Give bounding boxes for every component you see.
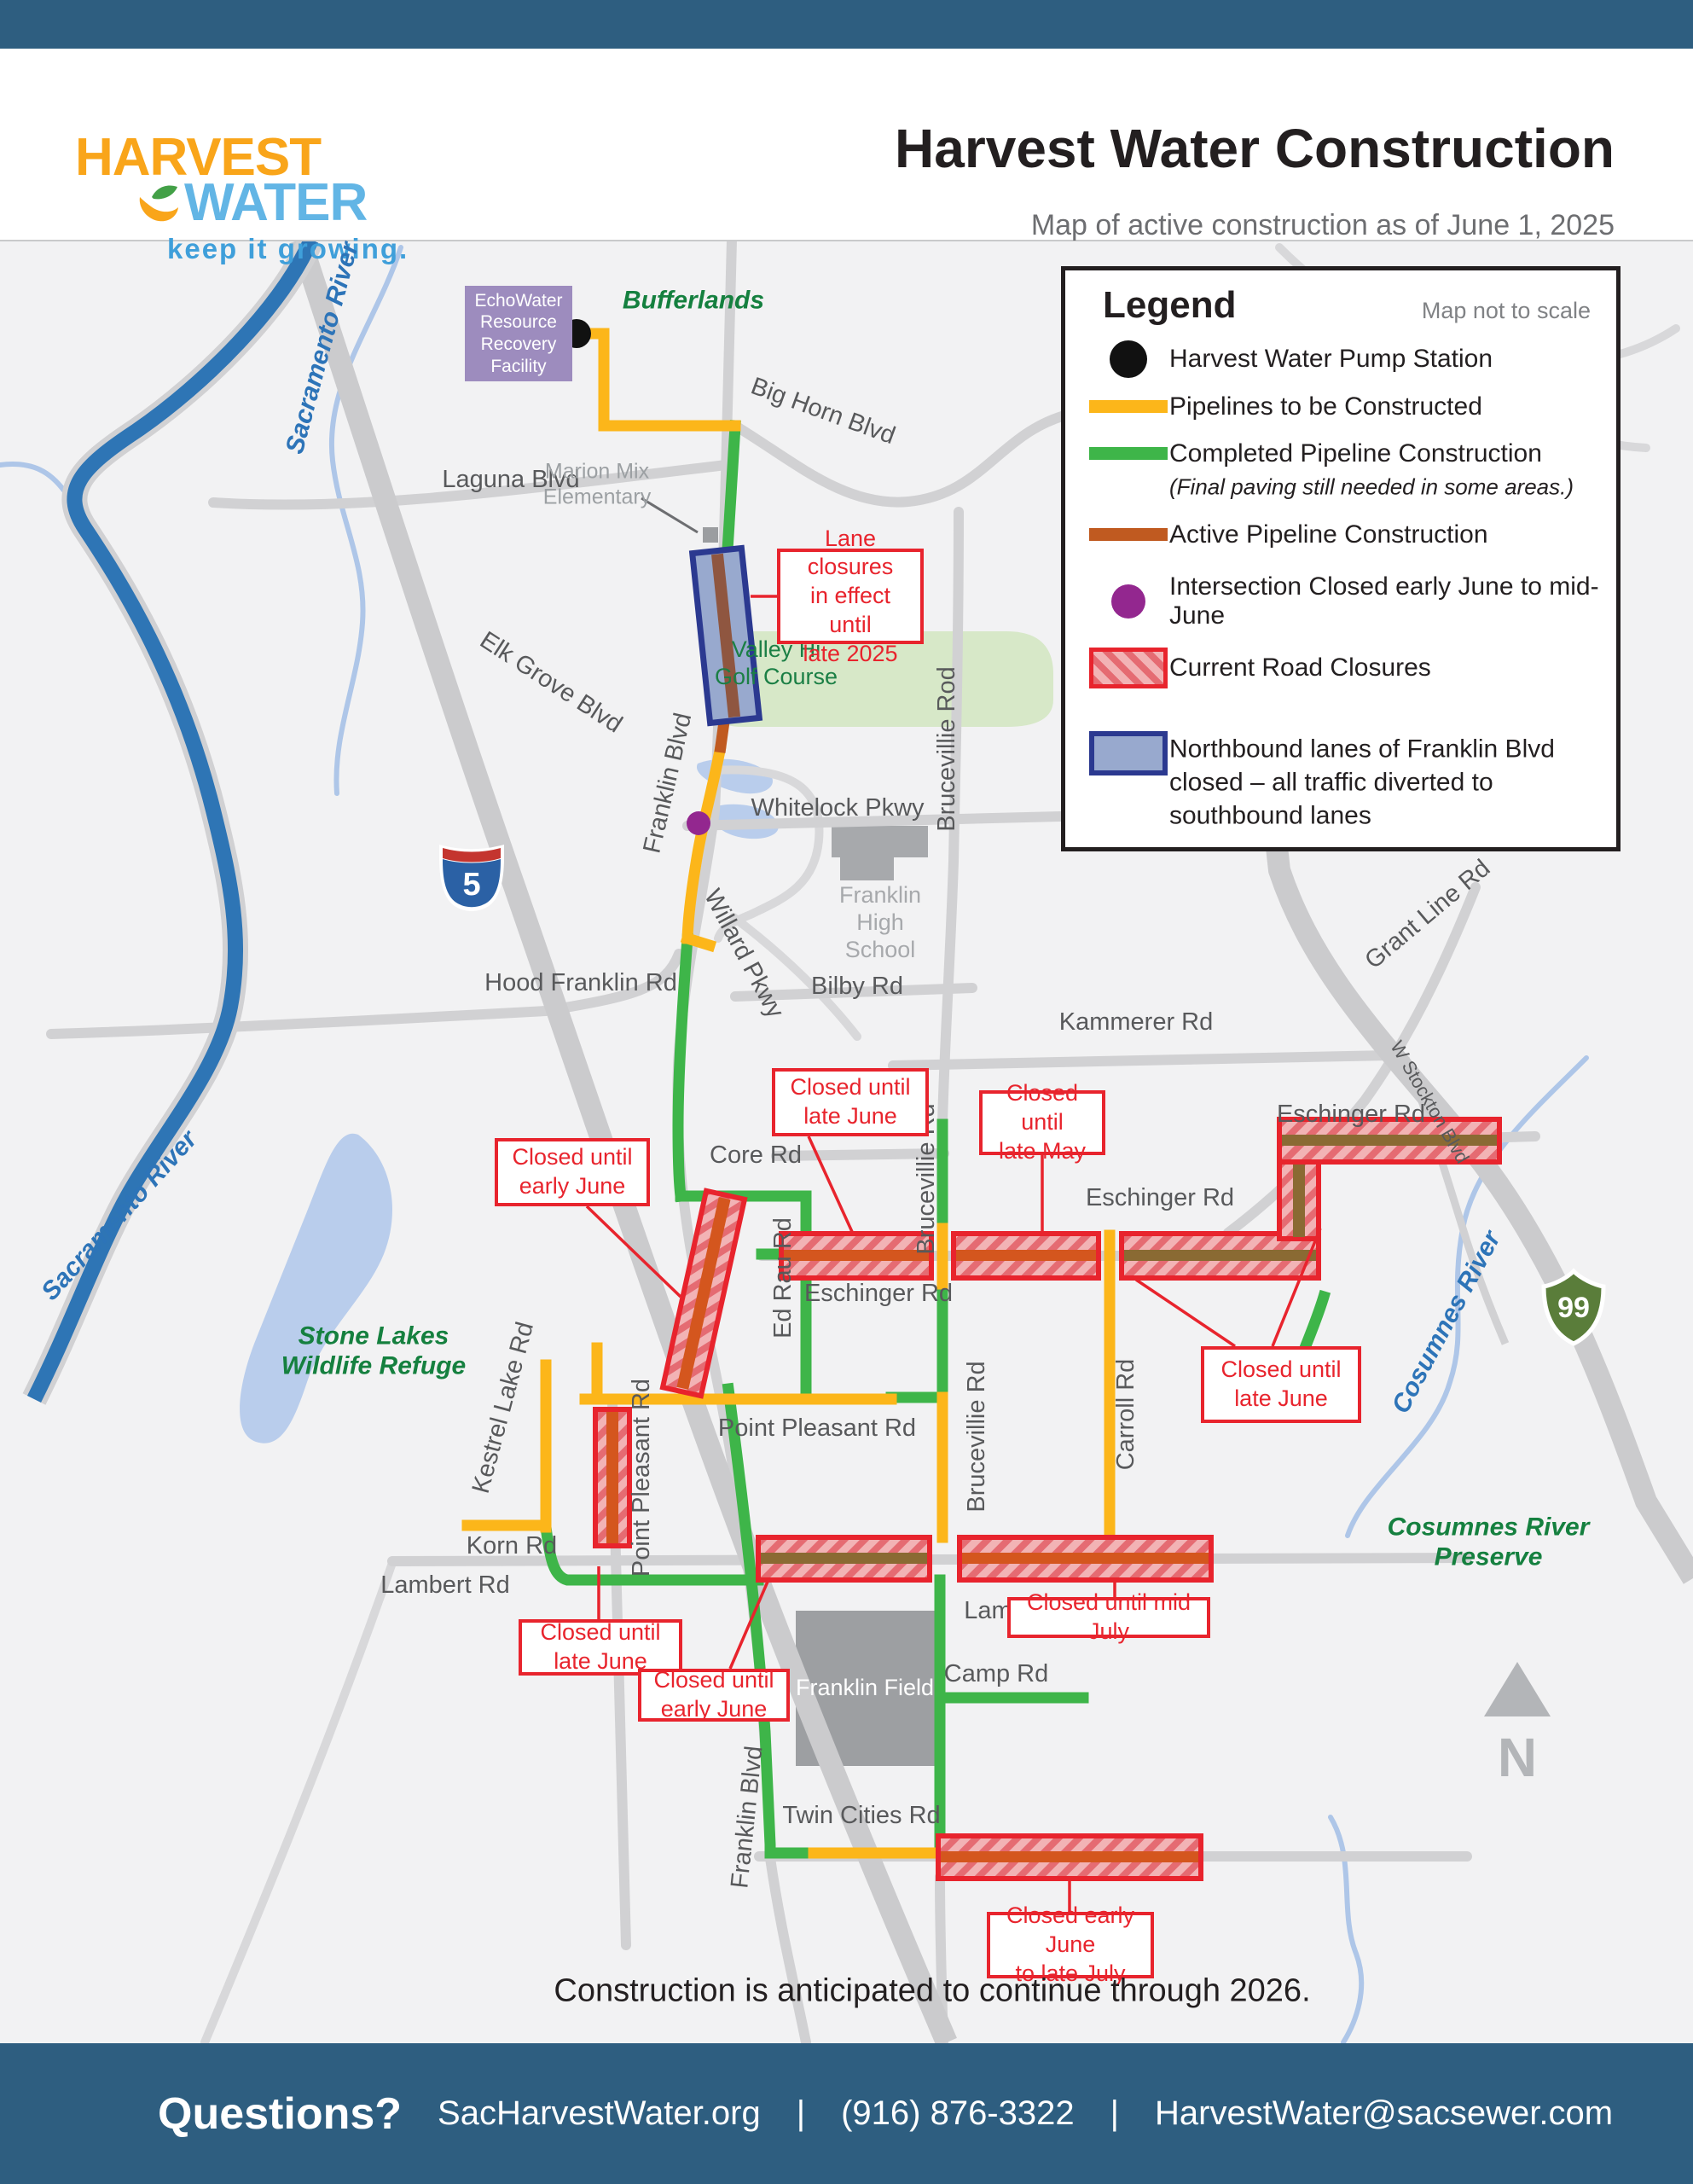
legend-box: Legend Map not to scale Harvest Water Pu… bbox=[1061, 266, 1621, 851]
label-twin-cities-rd: Twin Cities Rd bbox=[782, 1801, 940, 1830]
footer-separator-2: | bbox=[1110, 2094, 1119, 2133]
logo-water: WATER bbox=[184, 177, 367, 229]
label-core-rd: Core Rd bbox=[710, 1141, 802, 1170]
marion-mix-marker bbox=[703, 527, 718, 543]
label-bruceville-bottom: Brucevillie Rd bbox=[962, 1361, 991, 1512]
intersection-closed-dot bbox=[687, 811, 710, 835]
label-bufferlands: Bufferlands bbox=[623, 285, 764, 315]
label-bilby-rd: Bilby Rd bbox=[811, 972, 903, 1001]
label-cosumnes-preserve: Cosumnes River Preserve bbox=[1388, 1513, 1590, 1573]
legend-item-intersection: Intersection Closed early June to mid-Ju… bbox=[1169, 572, 1616, 630]
label-hood-franklin: Hood Franklin Rd bbox=[484, 968, 677, 997]
legend-item-pump: Harvest Water Pump Station bbox=[1169, 345, 1493, 374]
label-carroll-rd: Carroll Rd bbox=[1111, 1359, 1140, 1471]
label-point-pleasant-h: Point Pleasant Rd bbox=[718, 1414, 916, 1443]
callout-closed-late-june-1: Closed until late June bbox=[772, 1068, 929, 1136]
footer-bar: Questions? SacHarvestWater.org | (916) 8… bbox=[0, 2043, 1693, 2184]
top-color-bar bbox=[0, 0, 1693, 49]
legend-title: Legend bbox=[1103, 284, 1236, 327]
callout-closed-early-june-1: Closed until early June bbox=[495, 1138, 650, 1206]
page-title: Harvest Water Construction bbox=[676, 117, 1615, 180]
label-stone-lakes: Stone Lakes Wildlife Refuge bbox=[281, 1321, 466, 1382]
legend-orange-line bbox=[1089, 528, 1168, 541]
legend-item-active: Active Pipeline Construction bbox=[1169, 520, 1488, 549]
label-kammerer-rd: Kammerer Rd bbox=[1059, 1008, 1214, 1037]
callout-closed-june-july: Closed early June to late July bbox=[987, 1912, 1154, 1978]
legend-item-closures: Current Road Closures bbox=[1169, 653, 1431, 682]
logo-water-row: WATER bbox=[135, 177, 367, 229]
label-bruceville-top: Brucevillie Rod bbox=[932, 666, 961, 831]
footer-website: SacHarvestWater.org bbox=[438, 2094, 761, 2133]
callout-closed-late-may: Closed until late May bbox=[979, 1090, 1105, 1155]
label-whitelock-pkwy: Whitelock Pkwy bbox=[751, 793, 924, 822]
label-franklin-high: Franklin High School bbox=[839, 882, 921, 964]
callout-closed-mid-july: Closed until mid July bbox=[1007, 1597, 1210, 1638]
header: HARVEST WATER keep it growing. Harvest W… bbox=[0, 49, 1693, 241]
label-lambert-w: Lambert Rd bbox=[380, 1571, 510, 1600]
legend-closure-swatch bbox=[1089, 648, 1168, 688]
highway-99-number: 99 bbox=[1557, 1292, 1590, 1324]
label-eschinger-e: Eschinger Rd bbox=[1277, 1100, 1425, 1129]
label-korn-rd: Korn Rd bbox=[467, 1531, 557, 1560]
echowater-facility-box: EchoWater Resource Recovery Facility bbox=[465, 286, 572, 381]
logo-leaf-icon bbox=[135, 183, 179, 223]
label-ed-rau-rd: Ed Rau Rd bbox=[768, 1217, 797, 1339]
legend-item-pipelines: Pipelines to be Constructed bbox=[1169, 392, 1482, 421]
construction-note: Construction is anticipated to continue … bbox=[554, 1973, 1310, 2010]
legend-purple-dot bbox=[1111, 584, 1145, 619]
legend-item-completed-sub: (Final paving still needed in some areas… bbox=[1169, 474, 1574, 501]
flyer-page: 5 99 N HARVEST WATER keep it growing. Ha… bbox=[0, 0, 1693, 2184]
label-eschinger-w: Eschinger Rd bbox=[804, 1279, 953, 1308]
callout-closed-late-june-2: Closed until late June bbox=[1201, 1346, 1361, 1423]
footer-email: HarvestWater@sacsewer.com bbox=[1155, 2094, 1613, 2133]
active-pipeline-stub bbox=[720, 722, 724, 752]
label-point-pleasant-v: Point Pleasant Rd bbox=[627, 1379, 656, 1577]
north-arrow-letter: N bbox=[1498, 1727, 1537, 1788]
callout-closed-early-june-2: Closed until early June bbox=[638, 1669, 790, 1722]
footer-phone: (916) 876-3322 bbox=[841, 2094, 1075, 2133]
label-camp-rd: Camp Rd bbox=[944, 1659, 1049, 1688]
interstate-5-number: 5 bbox=[462, 867, 480, 903]
legend-scale-note: Map not to scale bbox=[1422, 298, 1591, 324]
logo-tagline: keep it growing. bbox=[167, 233, 409, 265]
legend-item-completed: Completed Pipeline Construction bbox=[1169, 439, 1542, 468]
label-franklin-field: Franklin Field bbox=[796, 1675, 934, 1702]
callout-lane-closures: Lane closures in effect until late 2025 bbox=[777, 549, 924, 644]
label-eschinger-mid: Eschinger Rd bbox=[1086, 1183, 1234, 1212]
footer-questions: Questions? bbox=[158, 2088, 402, 2140]
page-subtitle: Map of active construction as of June 1,… bbox=[676, 209, 1615, 242]
label-marion-mix: Marion Mix Elementary bbox=[543, 460, 651, 510]
legend-item-nb-lanes: Northbound lanes of Franklin Blvd closed… bbox=[1169, 733, 1555, 833]
legend-green-line bbox=[1089, 447, 1168, 460]
legend-pump-station-dot bbox=[1110, 340, 1147, 378]
legend-nb-swatch bbox=[1089, 731, 1168, 775]
legend-yellow-line bbox=[1089, 400, 1168, 413]
footer-separator-1: | bbox=[797, 2094, 805, 2133]
